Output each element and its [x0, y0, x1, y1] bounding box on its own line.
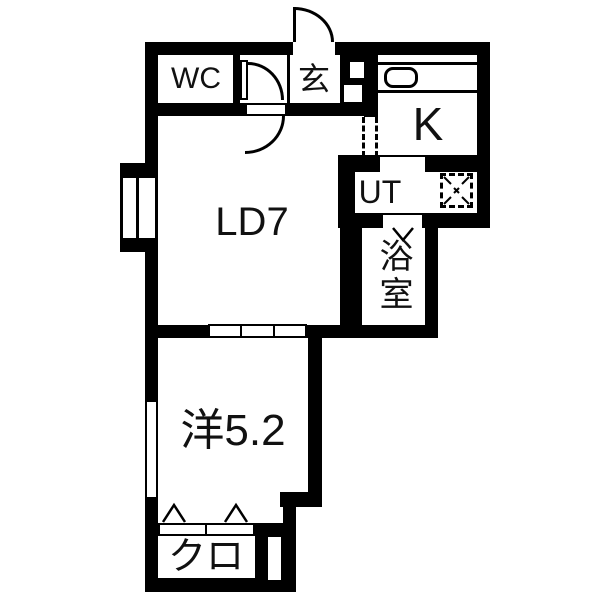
entrance-niche: [350, 62, 364, 78]
closet-side-slot: [268, 537, 281, 580]
entrance-door-swing-arc: [294, 7, 334, 42]
wall-segment: [233, 55, 240, 103]
genkan-step-line: [287, 55, 290, 103]
wall-segment: [477, 42, 490, 228]
wc-door-leaf: [240, 60, 248, 100]
living-door-swing-arc: [245, 116, 285, 154]
open-passage-dashed-line: [375, 117, 378, 157]
wc-door-swing-arc: [248, 62, 284, 100]
closet-door-track: [158, 523, 207, 536]
wall-segment: [145, 42, 293, 55]
double-casement-window: [123, 178, 156, 238]
wall-segment: [335, 42, 490, 55]
window-mullion: [136, 178, 139, 238]
entrance-niche: [344, 85, 362, 102]
kitchen-sink-icon: [384, 67, 418, 88]
floorplan: WC 玄 K UT 浴室 LD7 洋5.2 クロ: [0, 0, 600, 600]
open-passage-dashed-line: [362, 117, 365, 157]
room-label-kitchen: K: [413, 101, 444, 147]
living-door-leaf: [245, 103, 287, 116]
room-label-western-room: 洋5.2: [180, 409, 285, 453]
window-inner-line: [156, 402, 158, 497]
washing-machine-icon: [440, 173, 473, 208]
entrance-door-opening: [293, 42, 335, 55]
closet-bifold-door-icon: [224, 504, 248, 523]
room-label-living-dining: LD7: [215, 202, 288, 242]
sliding-door-panel: [273, 324, 307, 338]
room-label-wc: WC: [171, 64, 221, 94]
window-inner-line: [155, 178, 158, 238]
closet-bifold-door-icon: [162, 504, 186, 523]
room-label-utility: UT: [359, 176, 402, 208]
room-label-bathroom: 浴室: [376, 238, 410, 314]
sliding-door-panel: [240, 324, 275, 338]
room-label-entrance: 玄: [298, 63, 330, 95]
wall-segment: [348, 213, 362, 338]
wall-segment: [283, 507, 296, 592]
closet-door-track: [205, 523, 255, 536]
kitchen-utility-opening: [380, 157, 425, 172]
sliding-door-panel: [208, 324, 242, 338]
wall-segment: [308, 338, 322, 507]
washing-machine-cross: [443, 176, 470, 205]
wall-segment: [364, 42, 378, 117]
room-label-closet: クロ: [168, 538, 244, 576]
wall-segment: [425, 228, 438, 338]
